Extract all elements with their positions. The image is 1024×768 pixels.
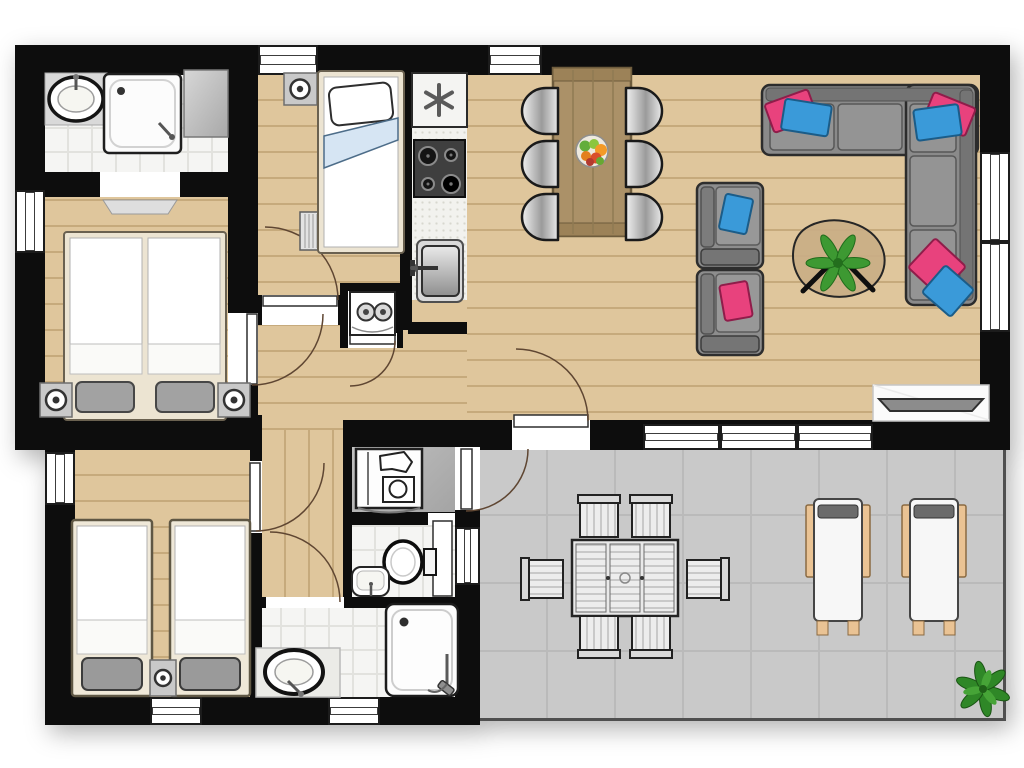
floor-plan bbox=[0, 0, 1024, 768]
doorway-terrace-main bbox=[512, 420, 590, 450]
wall-utility-north bbox=[343, 420, 480, 447]
doorway-bathroom bbox=[266, 597, 344, 608]
doorway-bedroom-single bbox=[262, 295, 338, 325]
room-bathroom bbox=[258, 608, 455, 697]
window-south-1 bbox=[150, 697, 202, 725]
doorway-terrace-side bbox=[455, 447, 480, 510]
window-east-1 bbox=[980, 152, 1010, 242]
room-hallway bbox=[262, 430, 343, 597]
doorway-boiler-closet bbox=[348, 333, 397, 348]
doorway-bedroom-twin bbox=[250, 461, 262, 533]
room-wc bbox=[352, 525, 455, 597]
window-south-2 bbox=[328, 697, 380, 725]
window-wc bbox=[455, 527, 480, 585]
window-living-3 bbox=[797, 424, 873, 450]
room-boiler-closet bbox=[348, 291, 395, 335]
doorway-bedroom-double bbox=[228, 313, 258, 385]
room-terrace bbox=[480, 450, 1006, 721]
room-living-dining bbox=[467, 75, 980, 420]
room-kitchen bbox=[412, 73, 467, 330]
wall-south bbox=[45, 697, 480, 725]
window-west-1 bbox=[15, 190, 45, 253]
wall-mid-vertical-stub bbox=[228, 385, 258, 415]
room-bedroom-twin bbox=[75, 450, 250, 697]
window-east-2 bbox=[980, 242, 1010, 332]
window-west-2 bbox=[45, 452, 75, 505]
window-north-2 bbox=[488, 45, 542, 75]
room-bedroom-single bbox=[258, 75, 400, 300]
window-living-2 bbox=[720, 424, 797, 450]
wall-bedrooms-divider bbox=[15, 415, 262, 450]
doorway-ensuite bbox=[100, 172, 180, 197]
window-living-1 bbox=[643, 424, 720, 450]
wall-mid-vertical bbox=[228, 75, 258, 313]
doorway-wc bbox=[428, 513, 455, 525]
room-ensuite-bathroom bbox=[45, 75, 230, 175]
floor-plan-canvas bbox=[0, 0, 1024, 768]
wall-kitchen-end bbox=[408, 322, 467, 334]
window-north-1 bbox=[258, 45, 318, 75]
room-utility-closet bbox=[352, 447, 455, 512]
